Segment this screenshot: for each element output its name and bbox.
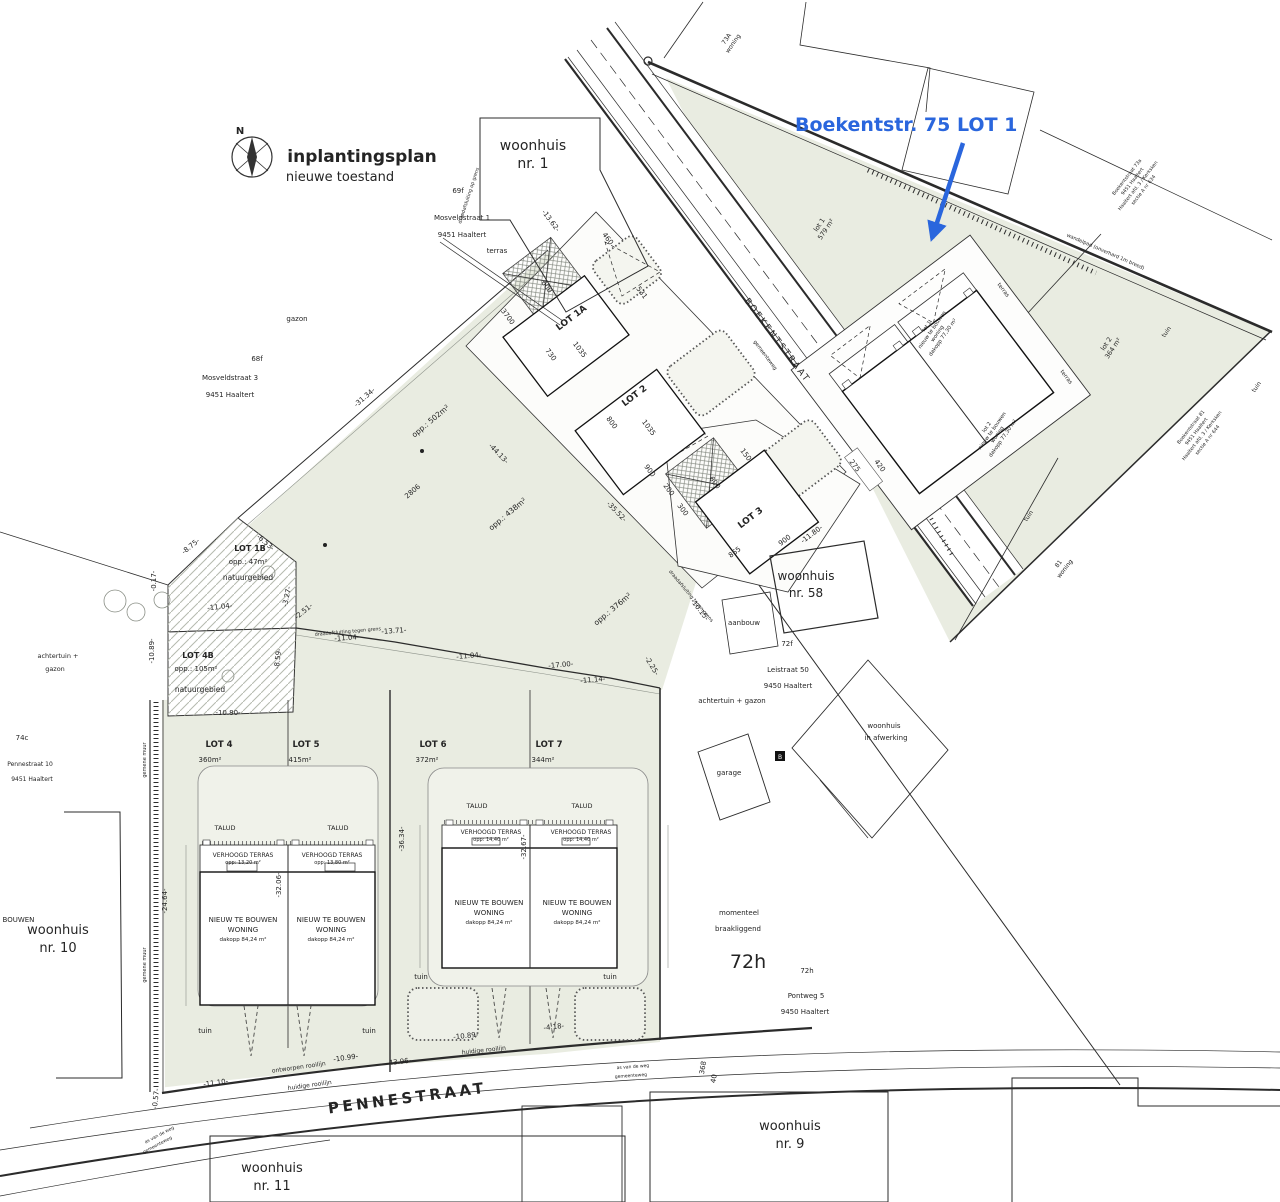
- svg-text:NIEUW TE BOUWEN: NIEUW TE BOUWEN: [455, 899, 524, 907]
- lot4b-zone: natuurgebied: [175, 685, 226, 694]
- woonhuis-9: woonhuis: [759, 1119, 821, 1134]
- addr-leib: 9450 Haaltert: [764, 682, 813, 690]
- svg-text:dakopp 84,24 m²: dakopp 84,24 m²: [465, 919, 512, 926]
- woonhuis-11: woonhuis: [241, 1161, 303, 1176]
- svg-text:B: B: [778, 754, 782, 761]
- achtertuin-left-1: achtertuin +: [37, 652, 78, 660]
- dim: -24.64-: [161, 888, 169, 914]
- woonhuis-58b: nr. 58: [789, 586, 823, 600]
- dim: -8.75-: [180, 537, 201, 557]
- terras-lot6-opp: opp: 14,40 m²: [473, 837, 508, 843]
- woonhuis-1: woonhuis: [500, 138, 566, 154]
- woonhuis-10b: nr. 10: [39, 941, 76, 956]
- svg-text:WONING: WONING: [228, 926, 258, 934]
- tuin-label: tuin: [1251, 380, 1264, 394]
- dim: -10.15-: [689, 597, 711, 622]
- lot1b-zone: natuurgebied: [223, 573, 274, 582]
- lot4-area: 360m²: [199, 756, 222, 764]
- garage-label: garage: [717, 769, 742, 777]
- parking-hedge: [575, 988, 645, 1040]
- tuin-label: tuin: [198, 1027, 212, 1035]
- addr-mos3: Mosveldstraat 3: [202, 374, 258, 382]
- dim: -32.06-: [275, 872, 283, 898]
- terras-lot5: VERHOOGD TERRAS: [302, 852, 363, 859]
- lot1b-label: LOT 1B: [234, 544, 266, 553]
- svg-text:NIEUW TE BOUWEN: NIEUW TE BOUWEN: [297, 916, 366, 924]
- site-plan-svg: N inplantingsplan nieuwe toestand Boeken…: [0, 0, 1280, 1202]
- terras-lot5-opp: opp: 13,80 m²: [314, 860, 349, 866]
- terras-neighbor: terras: [487, 247, 508, 255]
- plan-title: inplantingsplan: [287, 147, 436, 167]
- lot5-area: 415m²: [289, 756, 312, 764]
- dim: -10.80-: [215, 709, 241, 717]
- lot4b-area: opp.: 105m²: [175, 665, 218, 673]
- lot7-label: LOT 7: [535, 740, 562, 750]
- lot1b-area: opp.: 47m²: [229, 558, 268, 566]
- plan-subtitle: nieuwe toestand: [286, 170, 394, 185]
- terras-lot7-opp: opp: 14,40 m²: [563, 837, 598, 843]
- terras-lot7: VERHOOGD TERRAS: [551, 829, 612, 836]
- addr-lei: Leistraat 50: [767, 666, 809, 674]
- dim: 40: [709, 1074, 718, 1084]
- addr-pontb: 9450 Haaltert: [781, 1008, 830, 1016]
- party-wall-label: gemene muur: [142, 741, 148, 777]
- addr-mos3b: 9451 Haaltert: [206, 391, 255, 399]
- lot5-label: LOT 5: [292, 740, 319, 750]
- tuin-label: tuin: [362, 1027, 376, 1035]
- b-marker: B: [775, 751, 785, 761]
- woonhuis-9b: nr. 9: [776, 1137, 805, 1152]
- svg-text:NIEUW TE BOUWEN: NIEUW TE BOUWEN: [209, 916, 278, 924]
- kadaster-72f: 72f: [781, 640, 793, 648]
- lot7-area: 344m²: [532, 756, 555, 764]
- woonhuis-afwerking-b: in afwerking: [864, 734, 907, 742]
- talud-label: TALUD: [214, 824, 236, 832]
- woonhuis-10: woonhuis: [27, 923, 89, 938]
- terras-lot4-opp: opp: 13,20 m²: [225, 860, 260, 866]
- north-label: N: [236, 126, 244, 137]
- addr-pen10b: 9451 Haaltert: [11, 776, 53, 783]
- annotation-label: Boekentstr. 75 LOT 1: [795, 114, 1017, 136]
- kadaster-68f: 68f: [251, 355, 263, 363]
- woonhuis-58: woonhuis: [778, 569, 835, 583]
- lot4b-label: LOT 4B: [182, 651, 214, 660]
- terras-lot4: VERHOOGD TERRAS: [213, 852, 274, 859]
- kadaster-74c: 74c: [16, 734, 29, 742]
- lot6-label: LOT 6: [419, 740, 446, 750]
- addr-pont: Pontweg 5: [788, 992, 825, 1000]
- dim: -0.17-: [150, 570, 158, 591]
- talud-label: TALUD: [466, 802, 488, 810]
- status-braakliggend: braakliggend: [715, 925, 761, 933]
- aanbouw-label: aanbouw: [728, 619, 760, 627]
- kadaster-69f: 69f: [452, 187, 464, 195]
- svg-text:WONING: WONING: [316, 926, 346, 934]
- dim: -32.67-: [520, 834, 528, 860]
- gazon-label: gazon: [286, 315, 307, 323]
- talud-label: TALUD: [327, 824, 349, 832]
- achtertuin-gazon: achtertuin + gazon: [698, 697, 766, 705]
- dim: -36.34-: [398, 826, 406, 852]
- woonhuis-1b: nr. 1: [517, 156, 548, 172]
- kadaster-72h-small: 72h: [800, 967, 813, 975]
- tuin-label: tuin: [603, 973, 617, 981]
- svg-text:dakopp 84,24 m²: dakopp 84,24 m²: [219, 936, 266, 943]
- addr-mos1b: 9451 Haaltert: [438, 231, 487, 239]
- dim: -31.34-: [353, 386, 378, 409]
- addr-pen10: Pennestraat 10: [7, 761, 53, 768]
- tuin-label: tuin: [414, 973, 428, 981]
- woning-81: 81woning: [1049, 553, 1074, 579]
- lot4-label: LOT 4: [205, 740, 232, 750]
- svg-text:dakopp 84,24 m²: dakopp 84,24 m²: [553, 919, 600, 926]
- kadaster-72h-big: 72h: [730, 951, 766, 973]
- addr-73a-note: Boekentstraat 73a9451 HaaltertHaaltert a…: [1106, 151, 1165, 216]
- terras-lot6: VERHOOGD TERRAS: [461, 829, 522, 836]
- dim: -10.89-: [148, 638, 156, 664]
- site-plan-page: N inplantingsplan nieuwe toestand Boeken…: [0, 0, 1280, 1202]
- north-compass: N: [232, 126, 272, 177]
- svg-text:NIEUW TE BOUWEN: NIEUW TE BOUWEN: [543, 899, 612, 907]
- woonhuis-afwerking: woonhuis: [867, 722, 901, 730]
- svg-text:dakopp 84,24 m²: dakopp 84,24 m²: [307, 936, 354, 943]
- talud-label: TALUD: [571, 802, 593, 810]
- woning-73a: 73Awoning: [718, 28, 743, 55]
- status-momenteel: momenteel: [719, 909, 759, 917]
- achtertuin-left-2: gazon: [45, 665, 65, 673]
- svg-text:WONING: WONING: [474, 909, 504, 917]
- party-wall-label: gemene muur: [142, 946, 148, 982]
- svg-text:WONING: WONING: [562, 909, 592, 917]
- woonhuis-11b: nr. 11: [253, 1179, 290, 1194]
- lot6-area: 372m²: [416, 756, 439, 764]
- dim: -13.62-: [540, 208, 562, 233]
